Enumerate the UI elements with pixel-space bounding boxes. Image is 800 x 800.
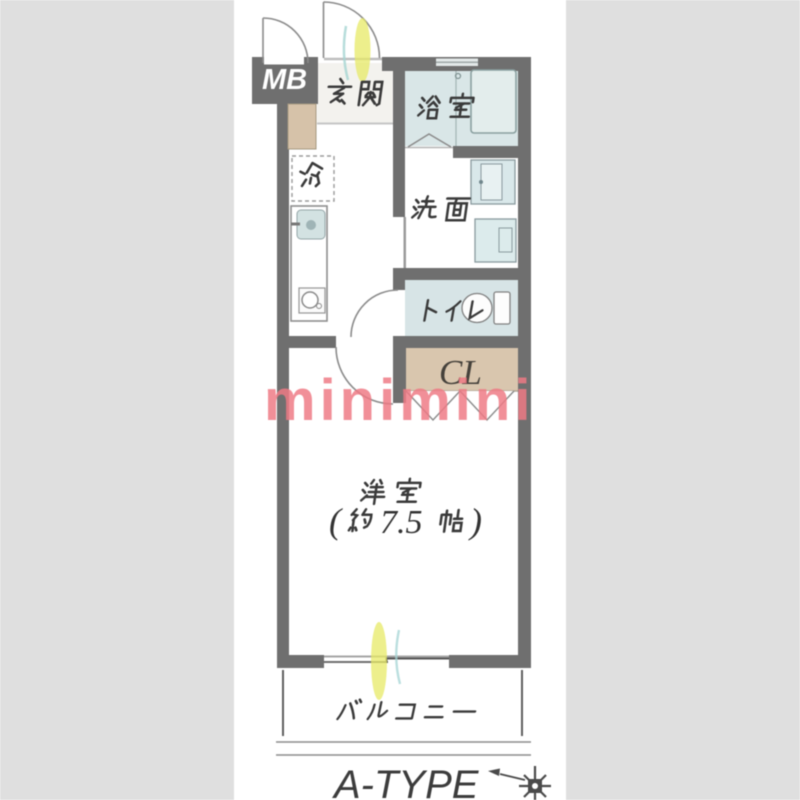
- svg-text:7.5: 7.5: [380, 504, 423, 541]
- svg-text:): ): [468, 501, 482, 541]
- svg-text:minimini: minimini: [264, 368, 534, 433]
- svg-text:A-TYPE: A-TYPE: [332, 763, 480, 800]
- svg-text:MB: MB: [262, 64, 307, 96]
- svg-text:(: (: [329, 501, 343, 541]
